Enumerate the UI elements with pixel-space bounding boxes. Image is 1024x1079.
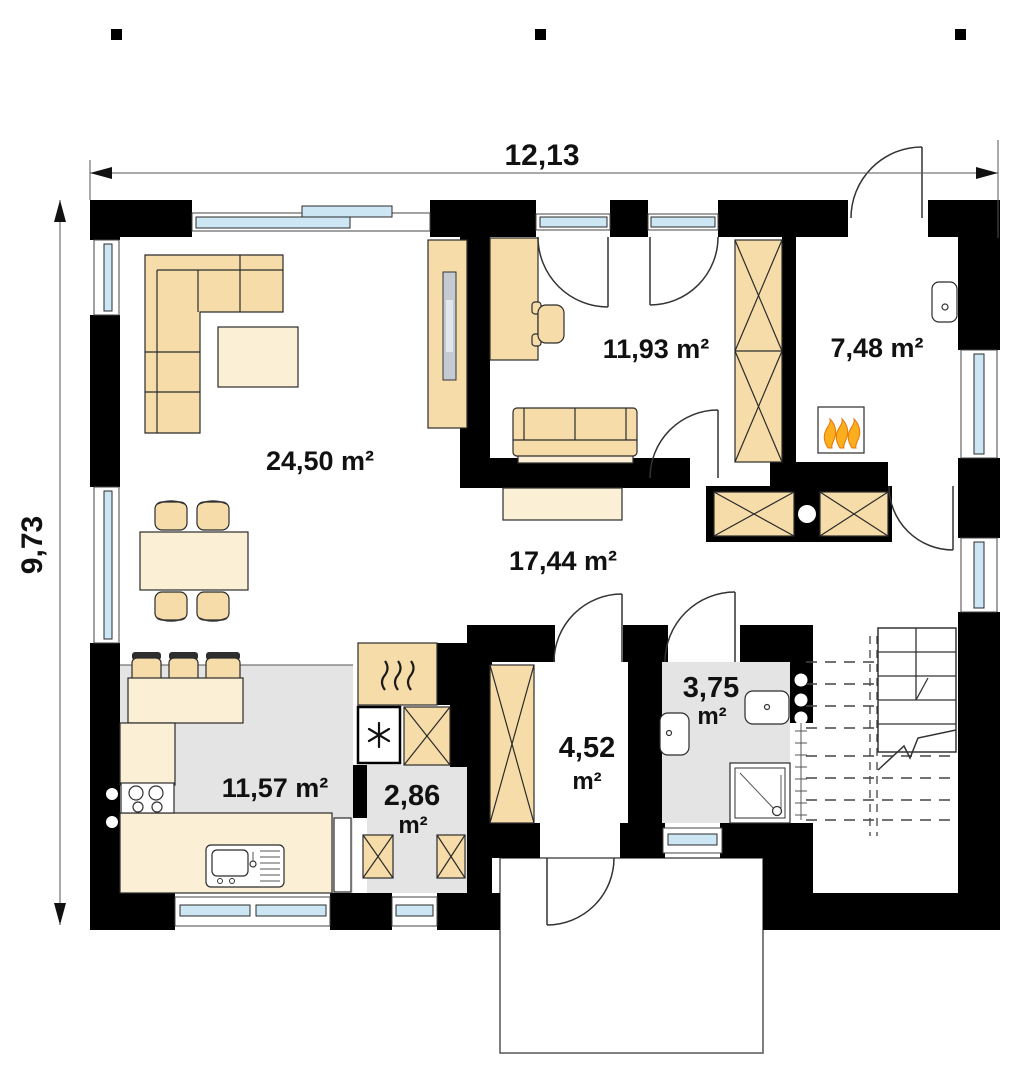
window-pane xyxy=(974,542,984,608)
window-pane xyxy=(651,217,715,227)
sliding-door-pane xyxy=(196,217,350,228)
dining-chair xyxy=(197,502,229,530)
window-pane xyxy=(974,354,984,454)
shower xyxy=(730,763,790,823)
window-pane xyxy=(180,905,250,916)
flame-icon xyxy=(824,419,860,448)
entry-wardrobe xyxy=(490,665,534,823)
sink-bowl xyxy=(212,850,248,876)
window-pane xyxy=(668,834,717,845)
living-room-furniture xyxy=(145,240,467,433)
arrowhead-left xyxy=(90,167,112,179)
arrowhead-down xyxy=(54,903,66,925)
chimney-vent xyxy=(795,712,808,725)
pantry-door-leaf xyxy=(334,818,351,892)
stair-flight xyxy=(878,628,956,752)
floor-plan-drawing: 24,50 m² 11,93 m² 7,48 m² 17,44 m² 11,57… xyxy=(0,0,1024,1079)
tall-wardrobe xyxy=(735,240,782,462)
hall-label: 17,44 m² xyxy=(509,546,617,576)
chimney-vent xyxy=(795,694,808,707)
dining-set xyxy=(140,501,248,621)
kitchen-sink xyxy=(206,845,284,887)
shower-drain xyxy=(773,807,782,816)
stove xyxy=(121,783,174,813)
washbasin xyxy=(660,713,689,755)
oven xyxy=(358,643,437,705)
dining-table xyxy=(140,532,248,590)
dining-chair xyxy=(155,592,187,620)
kitchen-label: 11,57 m² xyxy=(222,773,329,803)
window-pane xyxy=(256,905,326,916)
sliding-door-pane xyxy=(302,206,392,217)
pantry-label-value: 2,86 xyxy=(384,780,440,812)
hall-cabinet xyxy=(820,492,888,536)
desk xyxy=(490,238,538,360)
bathroom-label-unit: m² xyxy=(697,703,726,730)
marker-square xyxy=(955,29,966,40)
marker-square xyxy=(111,29,122,40)
chimney-vent xyxy=(106,816,118,828)
kitchen-counter-left xyxy=(120,723,175,785)
arrowhead-right xyxy=(976,167,998,179)
chimney-vent xyxy=(795,674,808,687)
stairs xyxy=(806,628,956,836)
bathroom-door xyxy=(665,592,735,662)
entrance-porch xyxy=(500,858,763,1053)
pantry-cabinet xyxy=(437,835,465,878)
boiler-room-fixtures xyxy=(818,282,957,453)
arrowhead-up xyxy=(54,200,66,222)
chimney-vent xyxy=(106,788,118,800)
boiler-door xyxy=(889,486,953,550)
window-pane xyxy=(396,905,433,916)
marker-square xyxy=(535,29,546,40)
fridge xyxy=(358,707,400,763)
dining-chair xyxy=(155,502,187,530)
boiler-room-label: 7,48 m² xyxy=(830,333,923,363)
window-pane xyxy=(104,244,112,311)
tv-screen xyxy=(446,300,453,352)
bathroom-label-value: 3,75 xyxy=(683,672,739,704)
bedroom-window-swing xyxy=(538,237,718,307)
window-pane xyxy=(540,217,607,227)
dining-chair xyxy=(197,592,229,620)
radiator xyxy=(795,723,807,820)
entry-label-unit: m² xyxy=(572,768,601,795)
entry-label-value: 4,52 xyxy=(559,732,615,764)
pantry-label-unit: m² xyxy=(398,812,427,839)
chimney-vent xyxy=(798,505,816,523)
bedroom-label: 11,93 m² xyxy=(603,334,710,364)
living-room-label: 24,50 m² xyxy=(266,446,374,476)
kitchen-cabinet xyxy=(404,707,450,765)
main-entrance-door xyxy=(851,147,922,218)
hall-cabinet xyxy=(714,492,794,536)
entry-door xyxy=(554,594,622,662)
bedroom-sofa xyxy=(513,408,637,463)
reference-markers xyxy=(111,29,966,40)
floor-plan-canvas: 24,50 m² 11,93 m² 7,48 m² 17,44 m² 11,57… xyxy=(0,0,1024,1079)
wall-boiler xyxy=(932,282,957,322)
toilet xyxy=(745,691,789,724)
height-dimension-label: 9,73 xyxy=(16,516,49,574)
window-pane xyxy=(104,491,112,639)
pantry-cabinet xyxy=(363,835,393,878)
sideboard xyxy=(503,488,622,520)
coffee-table xyxy=(218,327,298,387)
dimension-left: 9,73 xyxy=(16,200,66,925)
width-dimension-label: 12,13 xyxy=(504,139,579,172)
bar-counter xyxy=(128,678,243,723)
